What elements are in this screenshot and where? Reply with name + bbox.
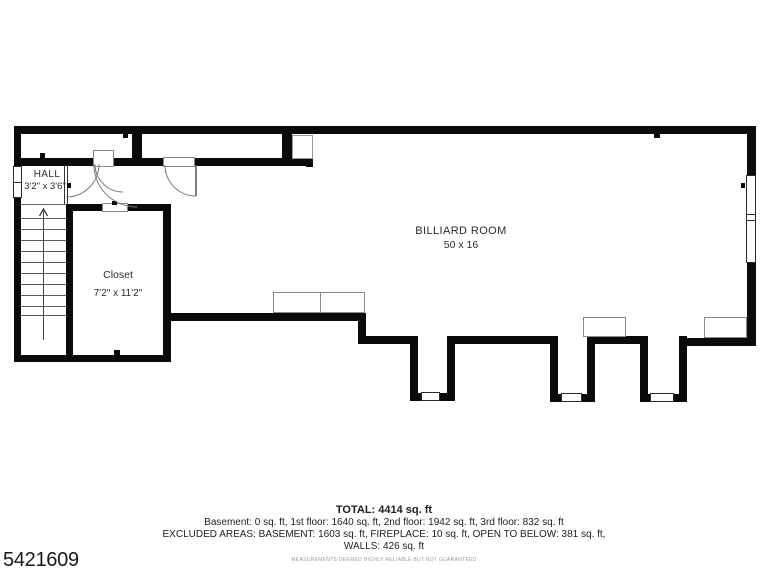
listing-id: 5421609 <box>3 549 79 572</box>
cabinet-box <box>273 292 365 313</box>
stair-tread <box>21 284 66 285</box>
stair-tread <box>21 218 66 219</box>
window-mullion <box>747 220 755 221</box>
closet-label: Closet <box>80 269 156 281</box>
summary-disclaimer: MEASUREMENTS DEEMED HIGHLY RELIABLE BUT … <box>0 557 768 563</box>
billiard-label: BILLIARD ROOM <box>391 225 531 237</box>
wall-inner-corridor-1 <box>18 158 93 166</box>
stair-tread <box>21 315 66 316</box>
wall-bay2-left <box>550 336 558 402</box>
stair-tread <box>21 240 66 241</box>
wall-outer-bottom-left <box>14 355 171 362</box>
summary-walls: WALLS: 426 sq. ft <box>0 541 768 552</box>
wall-closet-left <box>66 204 73 355</box>
wall-tick <box>112 201 117 205</box>
wall-tick <box>123 134 128 138</box>
wall-closet-right <box>163 204 171 362</box>
wall-bay3-left <box>640 336 648 402</box>
door-arc <box>95 164 123 192</box>
door-opening-billiard <box>163 157 195 167</box>
wall-corridor-endcap <box>306 160 313 167</box>
hall-stairs-divider <box>21 204 66 205</box>
wall-closet-top-right <box>128 204 171 211</box>
hall-dims: 3'2" x 3'6" <box>17 181 73 192</box>
billiard-dims: 50 x 16 <box>391 239 531 251</box>
summary-total: TOTAL: 4414 sq. ft <box>0 504 768 516</box>
stair-tread <box>21 273 66 274</box>
bay2-window <box>561 393 582 402</box>
window-mullion <box>747 214 755 215</box>
stair-tread <box>21 306 66 307</box>
door-opening-vestibule <box>93 150 114 167</box>
wall-outer-top <box>14 126 756 134</box>
wall-tick <box>741 183 745 188</box>
floor-plan-page: HALL 3'2" x 3'6" Closet 7'2" x 11'2" BIL… <box>0 0 768 576</box>
wall-lower-d <box>679 338 756 346</box>
stair-tread <box>21 229 66 230</box>
wall-lower-a <box>358 336 418 344</box>
right-wall-window <box>746 175 756 263</box>
wall-tick <box>654 134 660 138</box>
corridor-nook <box>292 135 313 159</box>
window-seat-box <box>583 317 626 337</box>
cabinet-divider <box>320 293 321 312</box>
wall-inner-corridor-2 <box>114 158 163 166</box>
wall-corridor-divider-1 <box>132 134 142 158</box>
door-arc <box>165 165 196 196</box>
summary-floors: Basement: 0 sq. ft, 1st floor: 1640 sq. … <box>0 517 768 528</box>
window-seat-box <box>704 317 747 338</box>
wall-bay2-right <box>587 336 595 402</box>
summary-excluded: EXCLUDED AREAS: BASEMENT: 1603 sq. ft, F… <box>0 529 768 540</box>
stair-tread <box>21 251 66 252</box>
wall-tick <box>40 153 45 158</box>
wall-tick <box>114 350 120 355</box>
staircase <box>21 207 66 317</box>
stair-tread <box>21 295 66 296</box>
closet-dims: 7'2" x 11'2" <box>74 288 162 299</box>
bay3-window <box>650 393 674 402</box>
wall-lower-c <box>587 336 648 344</box>
stair-tread <box>21 262 66 263</box>
wall-inner-corridor-3 <box>195 158 313 166</box>
wall-lower-b <box>447 336 558 344</box>
hall-label: HALL <box>24 169 70 180</box>
wall-billiard-bottom-1 <box>163 313 366 321</box>
wall-bay1-left <box>410 336 418 401</box>
wall-corridor-divider-2 <box>282 134 292 158</box>
bay1-window <box>421 392 440 401</box>
wall-bay1-right <box>447 336 455 401</box>
